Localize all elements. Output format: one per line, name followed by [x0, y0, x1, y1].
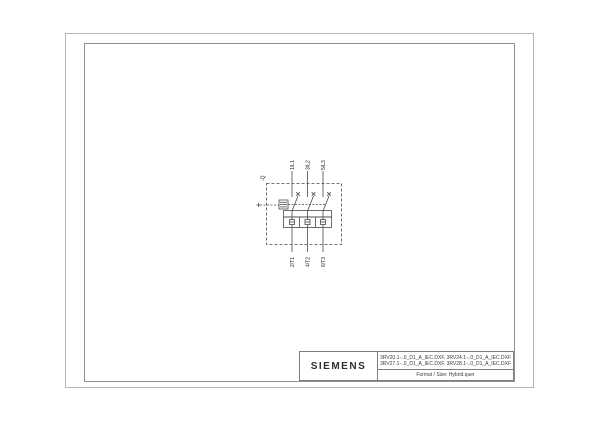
- schematic-labels: -Q 1/L1 3/L2 5/L3 2/T1 4/T2 6/T3: [261, 160, 328, 267]
- terminal-label-bottom: 6/T3: [321, 257, 327, 267]
- file-names-line-2: 3RV27.1-..0_D1_A_IEC.DXF, 3RV28.1-..0_D1…: [380, 361, 511, 367]
- terminal-label-top: 3/L2: [306, 160, 312, 170]
- drawing-page: -Q 1/L1 3/L2 5/L3 2/T1 4/T2 6/T3 SIEMENS…: [0, 0, 600, 424]
- terminal-label-top: 1/L1: [290, 160, 296, 170]
- title-block: SIEMENS 3RV20.1-..0_D1_A_IEC.DXF, 3RV24.…: [299, 351, 514, 381]
- terminal-label-bottom: 2/T1: [290, 257, 296, 267]
- terminal-label-bottom: 4/T2: [306, 257, 312, 267]
- schematic-linework: [257, 171, 342, 252]
- format-size-cell: Format / Size: Hybrid.quer: [378, 370, 513, 380]
- device-tag-label: -Q: [261, 175, 267, 181]
- title-block-right: 3RV20.1-..0_D1_A_IEC.DXF, 3RV24.1-..0_D1…: [378, 352, 513, 380]
- file-names-cell: 3RV20.1-..0_D1_A_IEC.DXF, 3RV24.1-..0_D1…: [378, 352, 513, 370]
- terminal-label-top: 5/L3: [321, 160, 327, 170]
- brand-cell: SIEMENS: [300, 352, 378, 380]
- siemens-logo: SIEMENS: [311, 361, 367, 372]
